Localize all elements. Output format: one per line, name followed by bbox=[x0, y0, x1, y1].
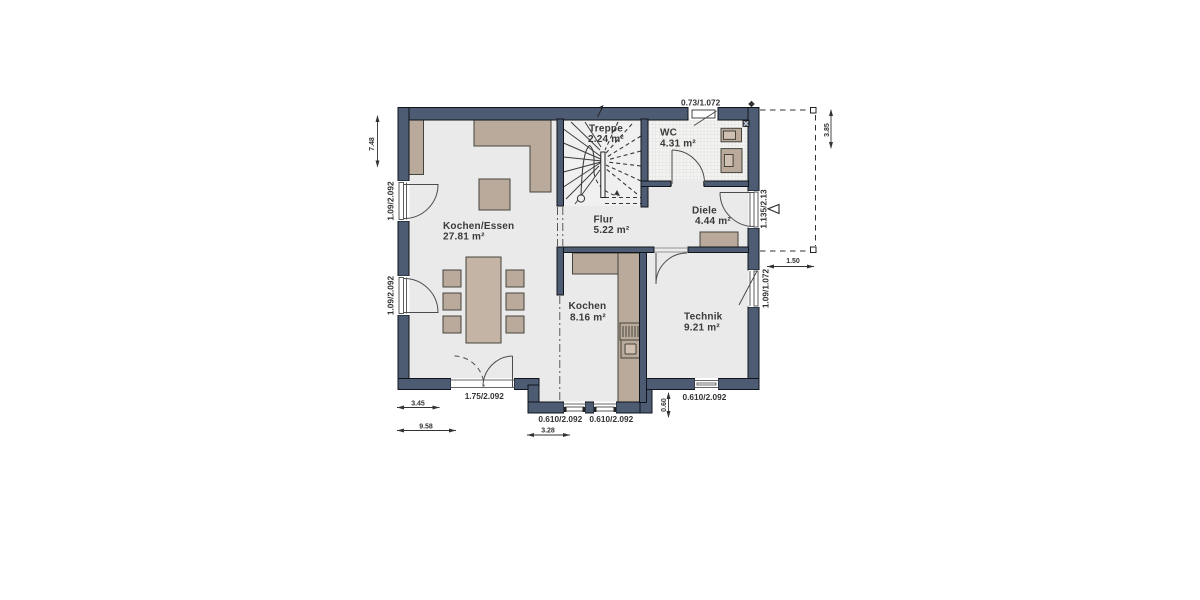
svg-text:0.610/2.092: 0.610/2.092 bbox=[589, 414, 633, 424]
svg-text:WC: WC bbox=[660, 128, 677, 139]
svg-text:3.28: 3.28 bbox=[541, 428, 555, 435]
svg-text:0.610/2.092: 0.610/2.092 bbox=[683, 392, 727, 402]
svg-text:0.60: 0.60 bbox=[661, 398, 668, 412]
svg-text:2.24 m²: 2.24 m² bbox=[588, 134, 624, 145]
svg-text:Treppe: Treppe bbox=[589, 124, 623, 135]
svg-text:7.48: 7.48 bbox=[369, 137, 376, 151]
svg-text:9.21 m²: 9.21 m² bbox=[684, 323, 720, 334]
svg-text:5.22 m²: 5.22 m² bbox=[594, 225, 630, 236]
svg-text:1.75/2.092: 1.75/2.092 bbox=[465, 391, 505, 401]
svg-text:0.73/1.072: 0.73/1.072 bbox=[681, 98, 721, 108]
svg-text:3.85: 3.85 bbox=[824, 123, 831, 137]
svg-text:Kochen/Essen: Kochen/Essen bbox=[443, 221, 514, 232]
svg-text:Flur: Flur bbox=[594, 215, 614, 226]
svg-text:Kochen: Kochen bbox=[569, 301, 607, 312]
svg-text:Technik: Technik bbox=[684, 312, 723, 323]
svg-text:1.09/2.092: 1.09/2.092 bbox=[386, 181, 396, 221]
svg-text:4.44 m²: 4.44 m² bbox=[695, 216, 731, 227]
svg-text:4.31 m²: 4.31 m² bbox=[660, 139, 696, 150]
svg-text:Diele: Diele bbox=[692, 206, 717, 217]
svg-text:8.16 m²: 8.16 m² bbox=[570, 313, 606, 324]
svg-text:1.09/2.092: 1.09/2.092 bbox=[386, 276, 396, 316]
svg-text:1.09/1.072: 1.09/1.072 bbox=[761, 269, 771, 309]
svg-text:27.81 m²: 27.81 m² bbox=[443, 232, 485, 243]
svg-text:0.610/2.092: 0.610/2.092 bbox=[538, 414, 582, 424]
svg-text:3.45: 3.45 bbox=[411, 401, 425, 408]
svg-text:9.58: 9.58 bbox=[419, 424, 433, 431]
svg-text:1.50: 1.50 bbox=[786, 258, 800, 265]
